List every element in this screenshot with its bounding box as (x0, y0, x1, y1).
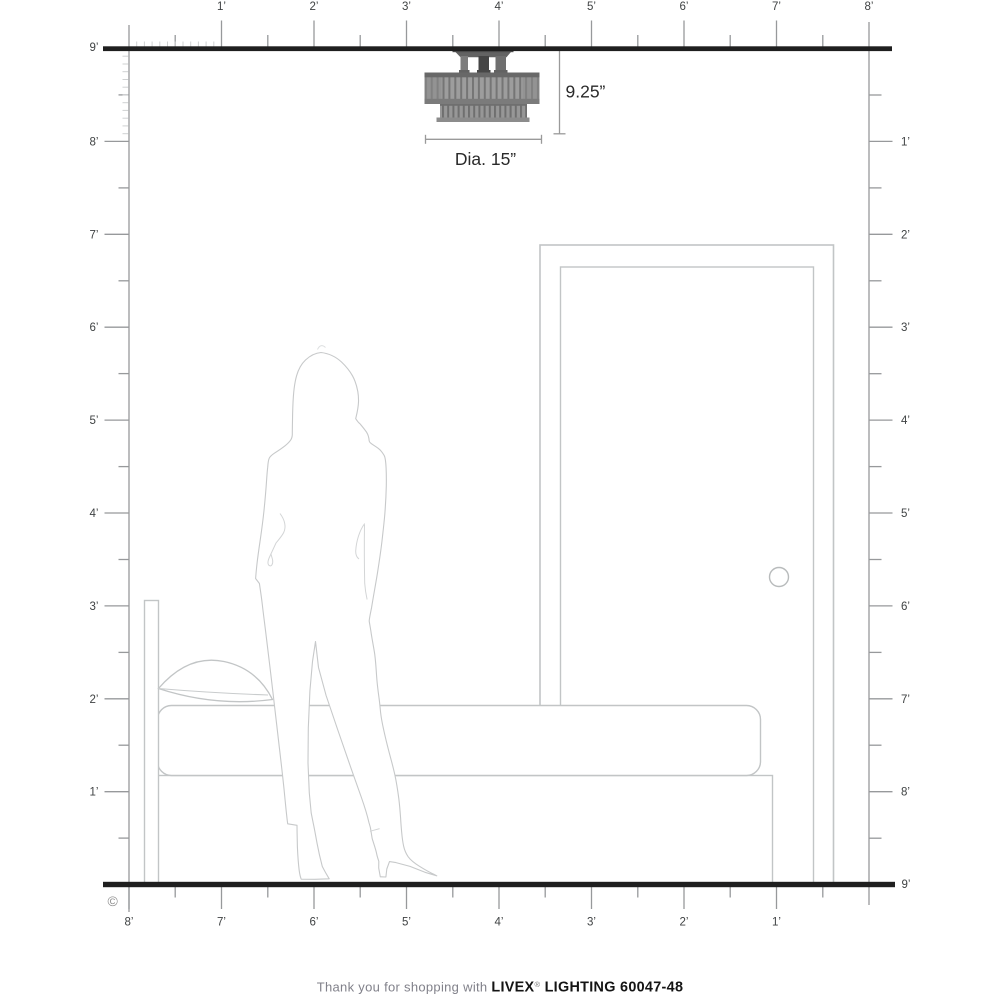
svg-text:6’: 6’ (680, 1, 689, 13)
svg-text:1’: 1’ (772, 917, 781, 929)
svg-text:5’: 5’ (901, 508, 910, 520)
svg-text:4’: 4’ (901, 415, 910, 427)
svg-text:3’: 3’ (901, 322, 910, 334)
svg-text:6’: 6’ (90, 322, 99, 334)
svg-text:1’: 1’ (217, 1, 226, 13)
svg-text:8’: 8’ (901, 787, 910, 799)
svg-text:3’: 3’ (587, 917, 596, 929)
svg-text:2’: 2’ (310, 1, 319, 13)
svg-text:7’: 7’ (90, 229, 99, 241)
svg-text:6’: 6’ (901, 601, 910, 613)
svg-text:2’: 2’ (680, 917, 689, 929)
svg-text:Dia. 15”: Dia. 15” (455, 149, 516, 169)
svg-text:9’: 9’ (90, 42, 99, 54)
svg-text:3’: 3’ (90, 601, 99, 613)
svg-text:4’: 4’ (495, 917, 504, 929)
svg-text:3’: 3’ (402, 1, 411, 13)
svg-text:4’: 4’ (90, 508, 99, 520)
svg-text:4’: 4’ (495, 1, 504, 13)
svg-text:2’: 2’ (90, 694, 99, 706)
svg-text:7’: 7’ (901, 694, 910, 706)
svg-text:5’: 5’ (90, 415, 99, 427)
svg-text:8’: 8’ (90, 136, 99, 148)
svg-text:6’: 6’ (310, 917, 319, 929)
svg-text:2’: 2’ (901, 229, 910, 241)
svg-text:1’: 1’ (90, 787, 99, 799)
svg-text:9.25”: 9.25” (566, 82, 606, 102)
svg-text:8’: 8’ (865, 1, 874, 13)
svg-text:5’: 5’ (587, 1, 596, 13)
svg-text:7’: 7’ (217, 917, 226, 929)
svg-text:9’: 9’ (902, 879, 911, 891)
svg-text:Thank you for shopping with LI: Thank you for shopping with LIVEX® LIGHT… (317, 980, 684, 996)
svg-text:8’: 8’ (125, 917, 134, 929)
svg-text:7’: 7’ (772, 1, 781, 13)
svg-text:1’: 1’ (901, 136, 910, 148)
svg-text:©: © (108, 893, 119, 909)
svg-text:5’: 5’ (402, 917, 411, 929)
